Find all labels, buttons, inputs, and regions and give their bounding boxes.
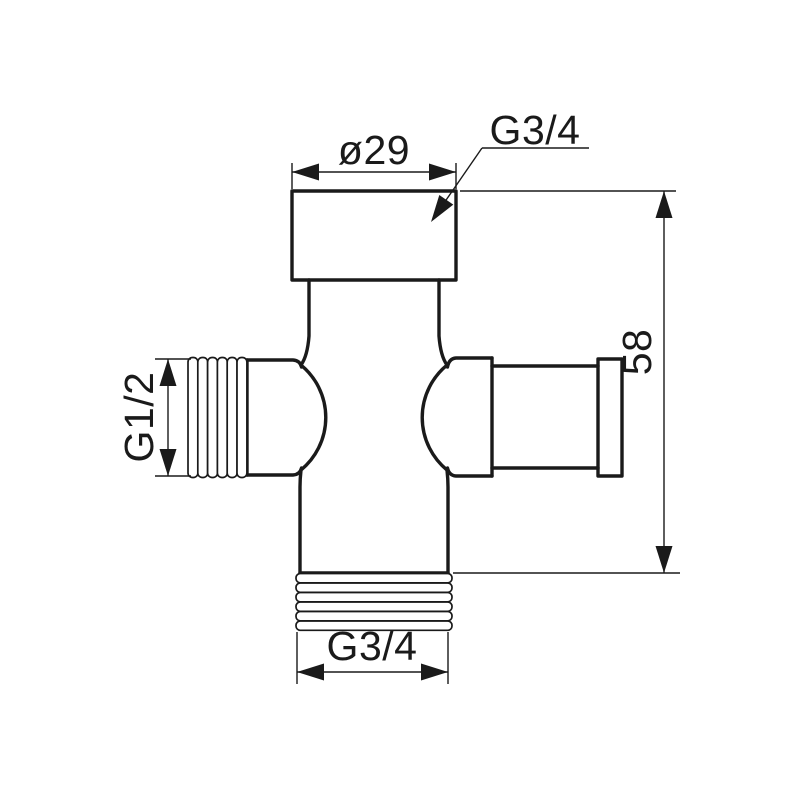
thread-ridge [237,358,247,478]
thread-ridge [208,358,218,478]
body-right-profile [422,280,448,573]
leader-arrowhead [431,195,453,222]
dimension-overall-height: 58 [453,191,680,573]
arrowhead-right [421,664,448,681]
dimension-bottom-thread: G3/4 [297,623,448,684]
thread-ridge [296,593,452,602]
thread-ridge [296,612,452,621]
right-collar-top-edge [448,358,493,367]
dimension-top-diameter: ø29 [292,127,456,189]
thread-ridge [188,358,198,478]
left-port-bottom-edge [247,468,302,475]
body-left-profile [300,280,326,573]
right-port-flange [598,359,622,476]
arrowhead-right [429,164,456,181]
thread-ridge [227,358,237,478]
valve-body-outline [247,191,622,573]
thread-ridge [198,358,208,478]
arrowhead-left [297,664,324,681]
technical-drawing-page: ø29 G3/4 58 G1/2 [0,0,800,800]
label-overall-height: 58 [614,329,660,376]
valve-technical-drawing: ø29 G3/4 58 G1/2 [0,0,800,800]
thread-ridge [296,574,452,583]
arrowhead-down [160,449,177,476]
thread-ridge [296,602,452,611]
thread-ridge [217,358,227,478]
arrowhead-up [160,359,177,386]
label-top-thread: G3/4 [490,107,581,153]
left-port-top-edge [247,360,302,367]
right-collar-bottom-edge [448,468,493,476]
left-port-threads [188,358,247,478]
top-port-block [292,191,456,280]
thread-ridge [296,583,452,592]
arrowhead-left [292,164,319,181]
arrowhead-up [656,191,673,218]
label-top-diameter: ø29 [338,127,410,173]
label-bottom-thread: G3/4 [327,623,418,669]
dimension-left-thread: G1/2 [116,359,191,476]
arrowhead-down [656,546,673,573]
label-left-thread: G1/2 [116,372,162,463]
bottom-port-threads [296,574,452,631]
